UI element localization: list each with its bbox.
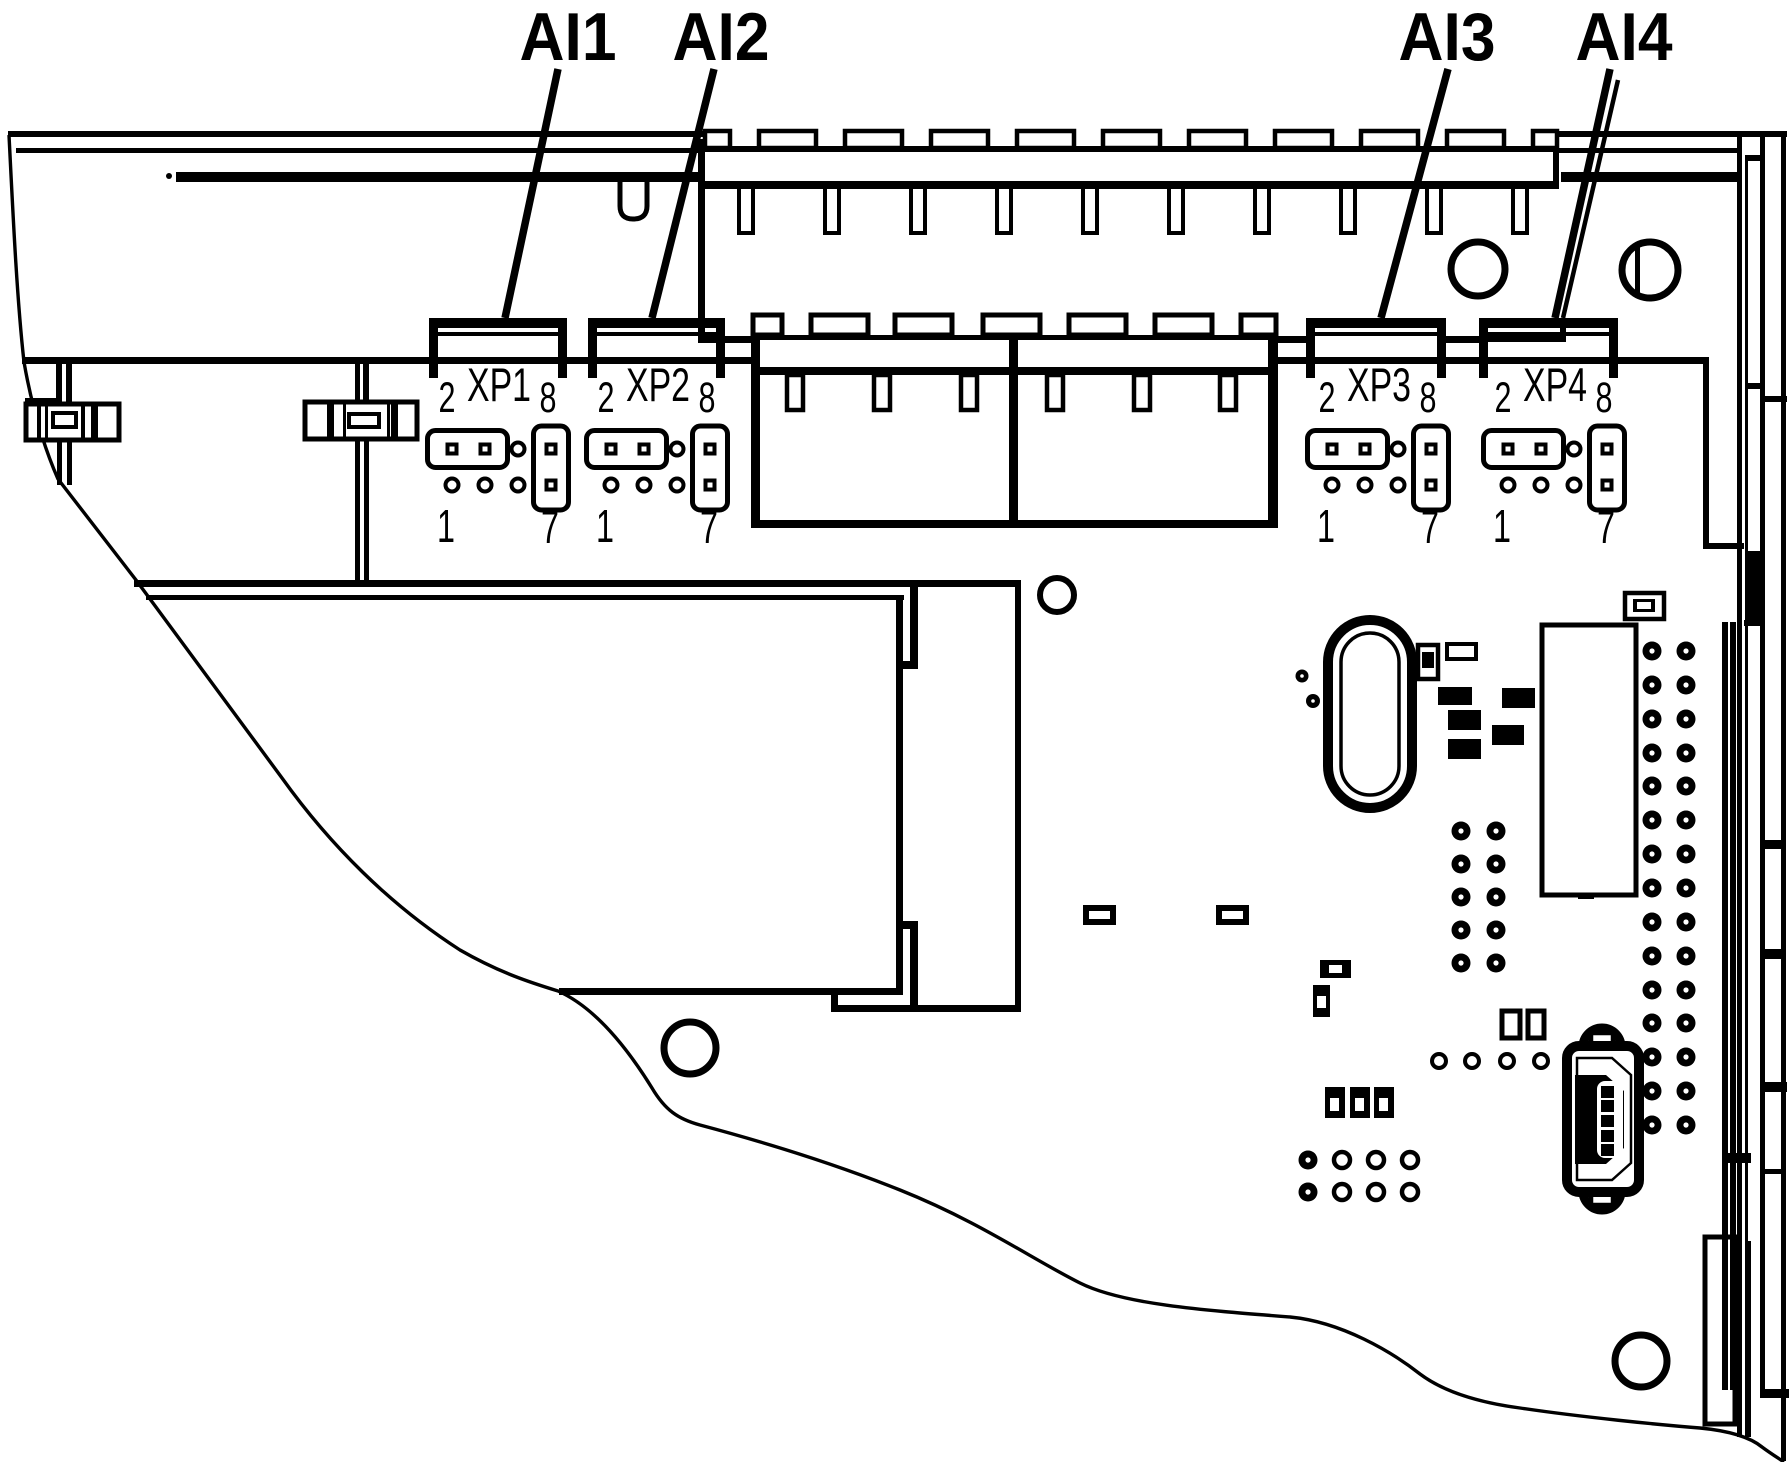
- svg-text:1: 1: [596, 500, 614, 552]
- svg-text:8: 8: [1596, 374, 1613, 422]
- svg-text:2: 2: [598, 374, 615, 422]
- svg-text:7: 7: [1597, 501, 1615, 553]
- svg-text:XP3: XP3: [1347, 358, 1411, 411]
- svg-text:AI3: AI3: [1399, 0, 1496, 75]
- svg-text:8: 8: [699, 374, 716, 422]
- svg-text:8: 8: [1420, 374, 1437, 422]
- svg-text:7: 7: [1421, 501, 1439, 553]
- svg-text:1: 1: [1317, 500, 1335, 552]
- svg-text:1: 1: [437, 500, 455, 552]
- svg-text:8: 8: [540, 374, 557, 422]
- svg-text:XP1: XP1: [467, 358, 531, 411]
- svg-text:2: 2: [1495, 374, 1512, 422]
- svg-text:7: 7: [700, 501, 718, 553]
- svg-text:XP2: XP2: [626, 358, 690, 411]
- svg-text:AI4: AI4: [1576, 0, 1673, 75]
- svg-text:2: 2: [1319, 374, 1336, 422]
- svg-text:AI2: AI2: [673, 0, 770, 75]
- svg-text:1: 1: [1493, 500, 1511, 552]
- svg-text:AI1: AI1: [520, 0, 617, 75]
- svg-text:2: 2: [439, 374, 456, 422]
- svg-text:XP4: XP4: [1523, 358, 1587, 411]
- svg-text:7: 7: [541, 501, 559, 553]
